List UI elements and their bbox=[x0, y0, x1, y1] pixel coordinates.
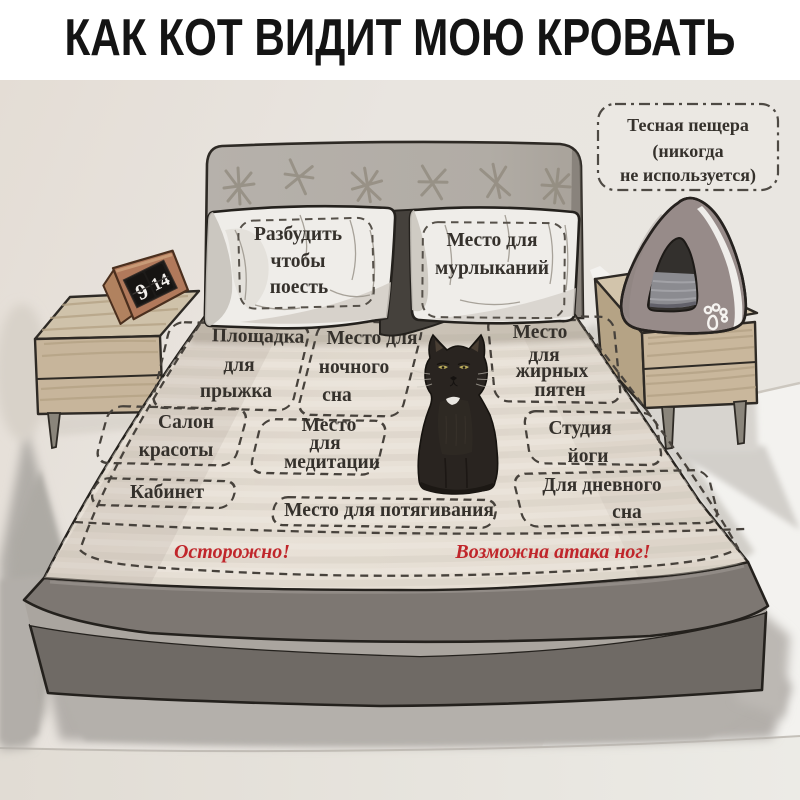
svg-text:Осторожно!: Осторожно! bbox=[174, 541, 290, 563]
svg-text:жирных: жирных bbox=[516, 361, 589, 382]
svg-text:ночного: ночного bbox=[319, 357, 390, 378]
svg-text:мурлыканий: мурлыканий bbox=[435, 258, 549, 279]
svg-text:медитации: медитации bbox=[284, 452, 380, 473]
svg-text:Тесная пещера: Тесная пещера bbox=[627, 115, 749, 135]
svg-text:для: для bbox=[223, 355, 255, 376]
svg-text:КАК КОТ ВИДИТ МОЮ КРОВАТЬ: КАК КОТ ВИДИТ МОЮ КРОВАТЬ bbox=[64, 8, 735, 66]
svg-text:Место: Место bbox=[513, 322, 568, 343]
svg-text:Место для: Место для bbox=[447, 230, 538, 251]
svg-text:пятен: пятен bbox=[534, 380, 585, 401]
svg-text:прыжка: прыжка bbox=[200, 381, 272, 402]
svg-text:Для дневного: Для дневного bbox=[542, 475, 661, 496]
svg-text:не используется): не используется) bbox=[620, 165, 756, 186]
svg-text:сна: сна bbox=[322, 385, 352, 406]
svg-text:Кабинет: Кабинет bbox=[130, 482, 205, 503]
svg-text:для: для bbox=[309, 433, 341, 454]
svg-text:Салон: Салон bbox=[158, 412, 214, 433]
svg-text:йоги: йоги bbox=[567, 446, 608, 467]
svg-text:Возможна атака ног!: Возможна атака ног! bbox=[454, 541, 650, 563]
svg-text:Место для потягивания: Место для потягивания bbox=[284, 500, 494, 521]
svg-text:чтобы: чтобы bbox=[270, 251, 325, 272]
svg-text:красоты: красоты bbox=[139, 440, 214, 461]
svg-text:поесть: поесть bbox=[270, 277, 328, 298]
svg-text:Студия: Студия bbox=[548, 418, 612, 439]
svg-text:сна: сна bbox=[612, 502, 642, 523]
svg-text:(никогда: (никогда bbox=[652, 141, 723, 162]
svg-text:Разбудить: Разбудить bbox=[254, 224, 342, 245]
